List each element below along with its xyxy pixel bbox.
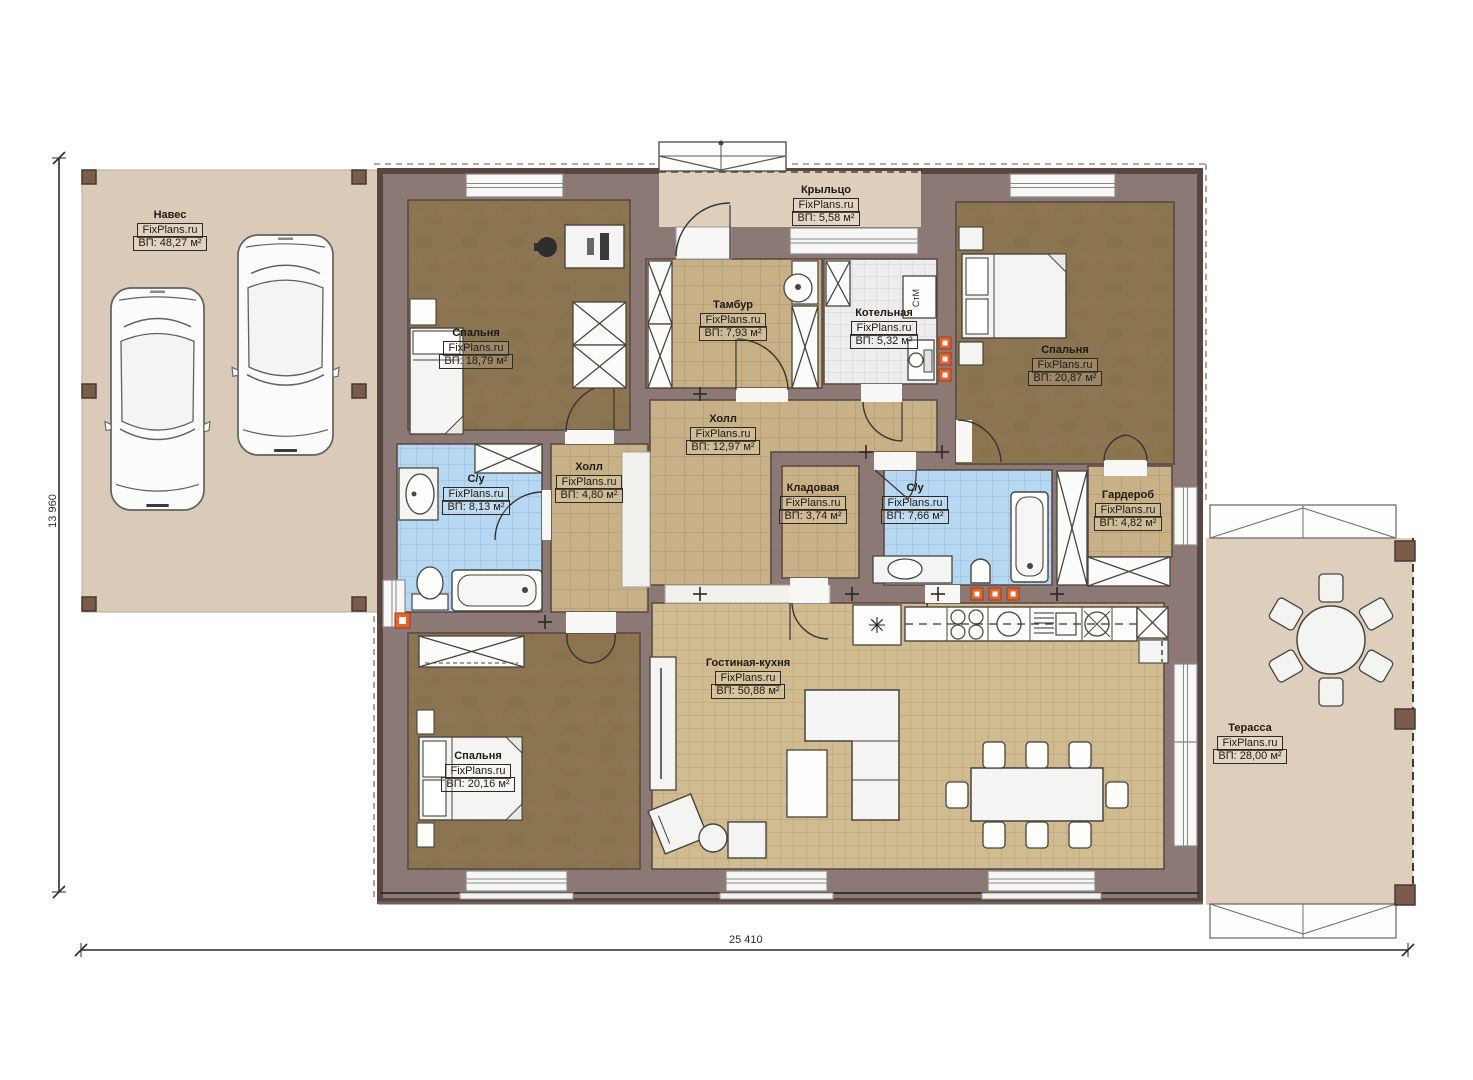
svg-text:✳: ✳ [868,613,886,638]
svg-text:СтМ: СтМ [911,289,921,307]
